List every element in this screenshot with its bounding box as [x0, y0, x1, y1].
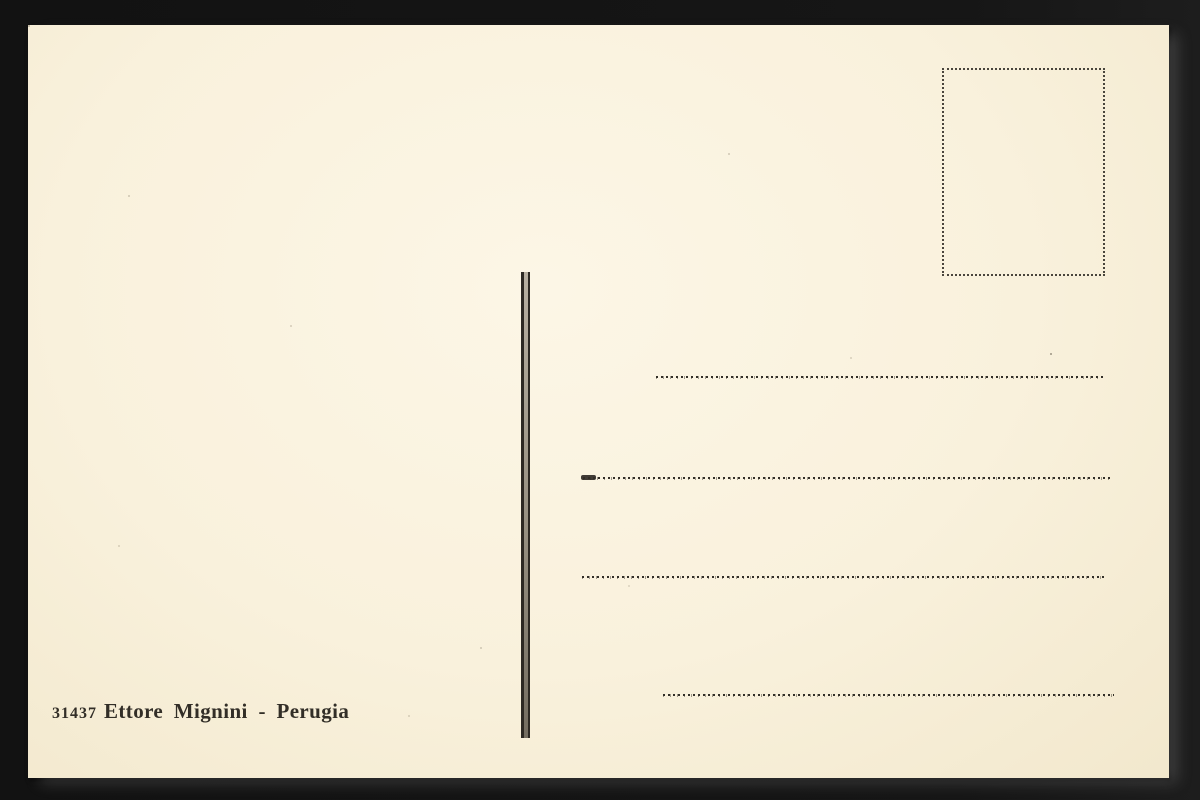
stamp-box: [942, 68, 1105, 276]
address-line-3: [582, 576, 1106, 579]
address-line-4: [663, 694, 1114, 697]
address-line-1: [656, 376, 1103, 379]
scan-background: 31437Ettore Mignini - Perugia: [0, 0, 1200, 800]
publisher-line: 31437Ettore Mignini - Perugia: [52, 699, 349, 724]
publisher-number: 31437: [52, 705, 97, 722]
postcard-back: 31437Ettore Mignini - Perugia: [28, 25, 1169, 778]
publisher-text: Ettore Mignini - Perugia: [104, 699, 349, 723]
divider-line: [521, 272, 530, 738]
address-line-2: [583, 477, 1112, 480]
